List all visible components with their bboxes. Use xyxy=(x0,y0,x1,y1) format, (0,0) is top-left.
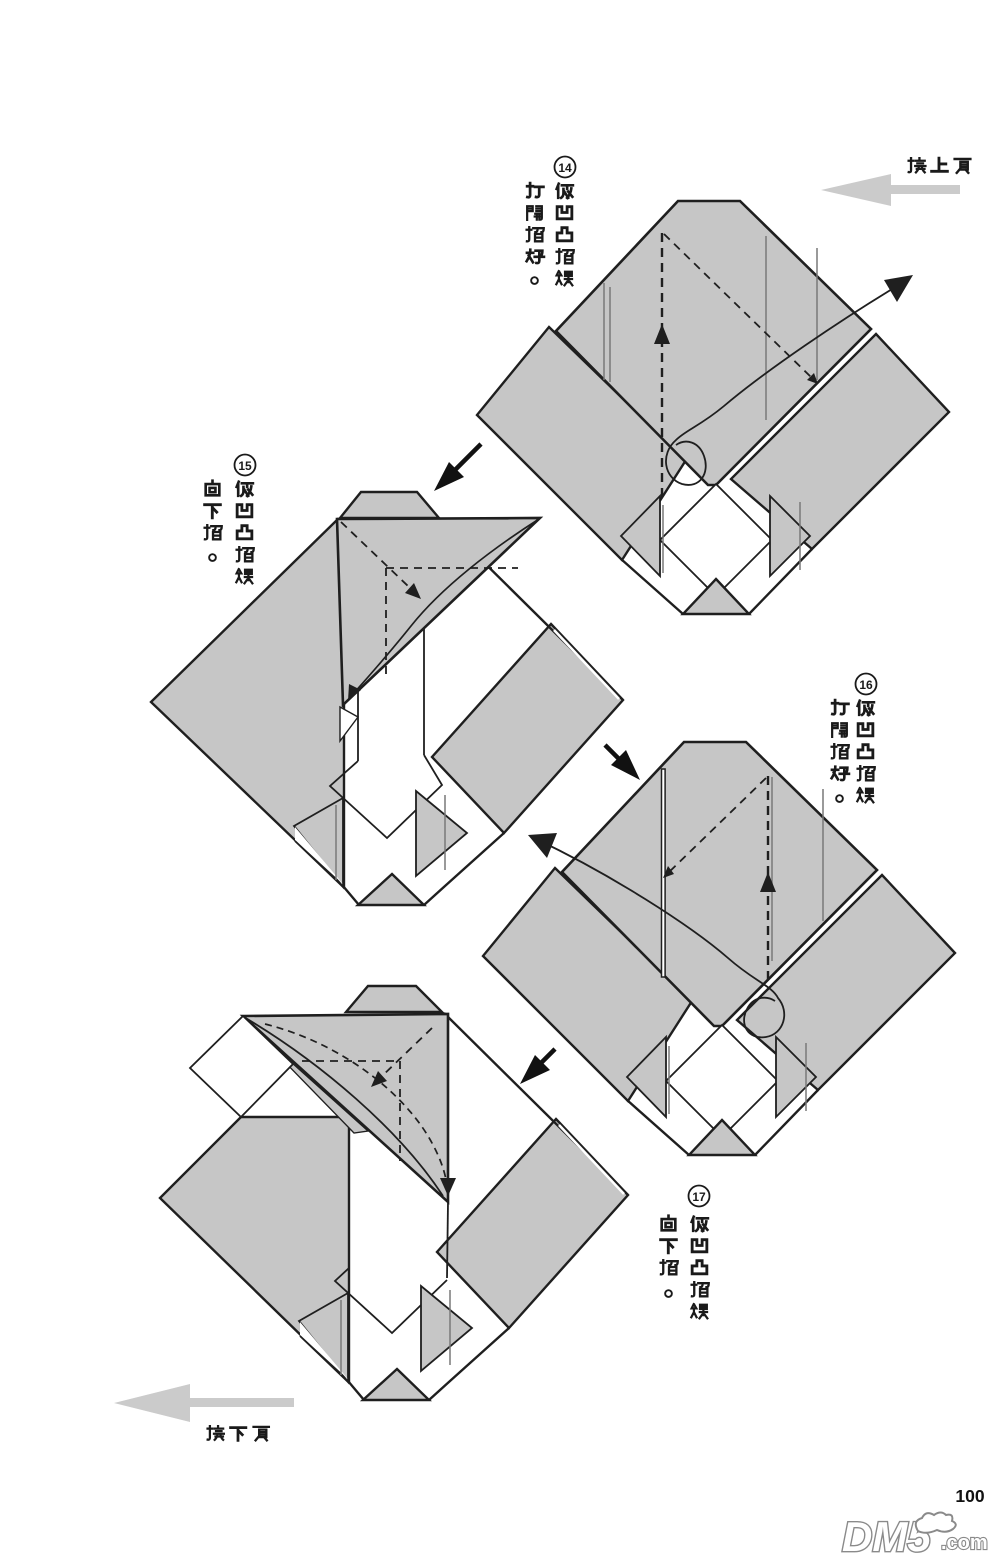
svg-text:.com: .com xyxy=(941,1532,988,1554)
svg-text:15: 15 xyxy=(238,459,252,473)
svg-text:17: 17 xyxy=(692,1190,706,1204)
svg-text:100: 100 xyxy=(955,1486,984,1506)
svg-text:14: 14 xyxy=(558,161,572,175)
svg-text:16: 16 xyxy=(859,678,873,692)
